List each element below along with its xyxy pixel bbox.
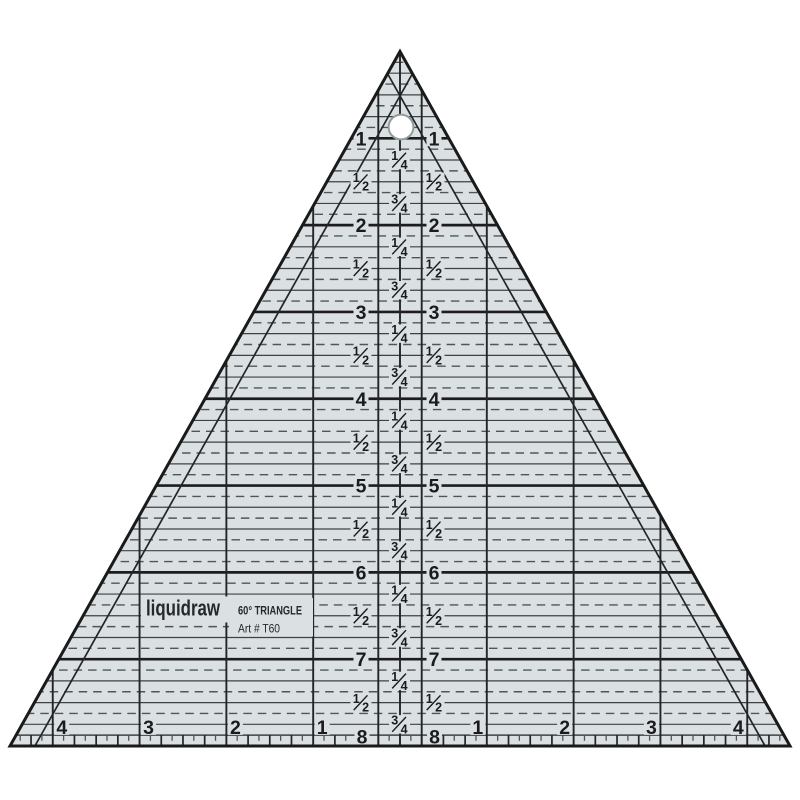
base-scale-label-right: 3 [646,717,657,739]
fraction-label-half-denominator: 2 [435,701,442,715]
fraction-label-half-denominator: 2 [362,614,369,628]
hanging-hole [389,115,414,140]
inch-label-right: 6 [429,562,440,584]
fraction-label-half-numerator: 1 [426,431,433,445]
fraction-label-quarter-denominator: 4 [401,332,408,346]
fraction-label-half-denominator: 2 [435,440,442,454]
base-scale-label-left: 2 [230,717,241,739]
inch-label-right: 2 [429,215,440,237]
fraction-label-half-numerator: 1 [353,605,360,619]
fraction-label-quarter-numerator: 1 [391,149,398,163]
fraction-label-half-denominator: 2 [362,267,369,281]
base-scale-label-right: 4 [733,717,744,739]
fraction-label-quarter-numerator: 1 [391,323,398,337]
inch-label-left: 6 [356,562,367,584]
fraction-label-half-denominator: 2 [362,527,369,541]
base-scale-label-left: 4 [56,717,67,739]
inch-label-right: 3 [429,302,440,324]
fraction-label-half-numerator: 1 [426,605,433,619]
fraction-label-half-numerator: 1 [353,258,360,272]
fraction-label-quarter-denominator: 4 [401,592,408,606]
fraction-label-quarter-numerator: 1 [391,496,398,510]
fraction-label-quarter-denominator: 4 [401,418,408,432]
fraction-label-three-quarter-numerator: 3 [391,540,398,554]
product-title: 60° TRIANGLE [238,604,302,618]
fraction-label-three-quarter-numerator: 3 [391,713,398,727]
fraction-label-quarter-numerator: 1 [391,670,398,684]
inch-label-left: 4 [356,389,367,411]
product-photo: 1114121234221412123433141212344414121234… [0,0,800,800]
fraction-label-half-denominator: 2 [435,180,442,194]
fraction-label-three-quarter-denominator: 4 [401,462,408,476]
inch-label-left: 3 [356,302,367,324]
fraction-label-three-quarter-numerator: 3 [391,279,398,293]
fraction-label-quarter-numerator: 1 [391,410,398,424]
fraction-label-quarter-numerator: 1 [391,236,398,250]
fraction-label-three-quarter-denominator: 4 [401,722,408,736]
fraction-label-three-quarter-denominator: 4 [401,201,408,215]
fraction-label-quarter-numerator: 1 [391,583,398,597]
fraction-label-three-quarter-denominator: 4 [401,635,408,649]
inch-label-right: 5 [429,476,440,498]
fraction-label-three-quarter-denominator: 4 [401,549,408,563]
fraction-label-half-numerator: 1 [353,431,360,445]
product-art-number: Art # T60 [238,624,280,636]
fraction-label-half-numerator: 1 [353,171,360,185]
inch-label-right: 7 [429,649,440,671]
fraction-label-half-numerator: 1 [426,171,433,185]
inch-label-left: 5 [356,476,367,498]
fraction-label-three-quarter-denominator: 4 [401,375,408,389]
fraction-label-half-denominator: 2 [435,527,442,541]
base-scale-label-right: 1 [472,717,483,739]
fraction-label-three-quarter-numerator: 3 [391,453,398,467]
fraction-label-half-denominator: 2 [362,353,369,367]
fraction-label-half-numerator: 1 [426,518,433,532]
fraction-label-half-numerator: 1 [426,258,433,272]
fraction-label-half-denominator: 2 [362,180,369,194]
fraction-label-half-denominator: 2 [435,267,442,281]
fraction-label-quarter-denominator: 4 [401,158,408,172]
fraction-label-three-quarter-numerator: 3 [391,366,398,380]
fraction-label-half-numerator: 1 [353,345,360,359]
inch-label-left: 7 [356,649,367,671]
base-scale-label-right: 2 [559,717,570,739]
inch-label-left: 2 [356,215,367,237]
fraction-label-half-numerator: 1 [426,345,433,359]
fraction-label-half-numerator: 1 [353,692,360,706]
fraction-label-half-denominator: 2 [362,701,369,715]
triangle-ruler-graphic: 1114121234221412123433141212344414121234… [0,0,800,800]
fraction-label-half-denominator: 2 [435,614,442,628]
base-scale-label-left: 1 [317,717,328,739]
base-scale-label-left: 3 [143,717,154,739]
fraction-label-quarter-denominator: 4 [401,245,408,259]
brand-wordmark: liquidraw [146,596,221,621]
fraction-label-three-quarter-numerator: 3 [391,193,398,207]
fraction-label-half-numerator: 1 [353,518,360,532]
fraction-label-half-denominator: 2 [362,440,369,454]
fraction-label-quarter-denominator: 4 [401,679,408,693]
inch-label-left: 1 [356,128,367,150]
fraction-label-half-denominator: 2 [435,353,442,367]
fraction-label-three-quarter-denominator: 4 [401,288,408,302]
inch-label-right: 4 [429,389,440,411]
fraction-label-three-quarter-numerator: 3 [391,627,398,641]
fraction-label-quarter-denominator: 4 [401,505,408,519]
fraction-label-half-numerator: 1 [426,692,433,706]
inch-label-right: 1 [429,128,440,150]
